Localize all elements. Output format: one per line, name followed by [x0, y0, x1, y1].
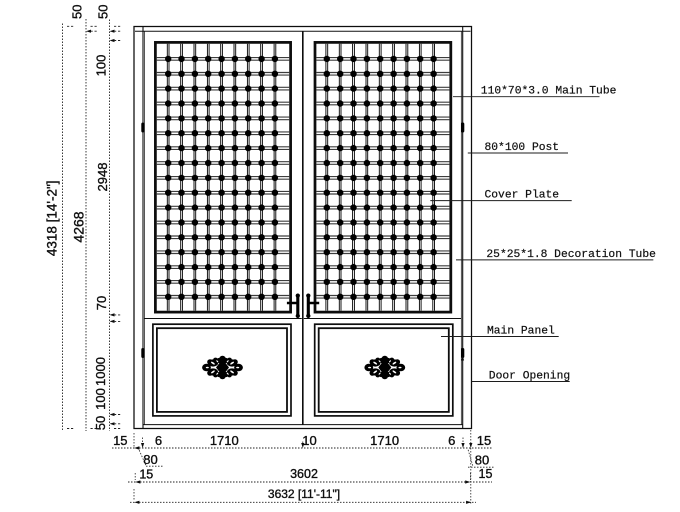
svg-text:15: 15: [139, 468, 153, 482]
svg-text:110*70*3.0 Main Tube: 110*70*3.0 Main Tube: [481, 86, 617, 98]
svg-text:1710: 1710: [210, 433, 239, 448]
svg-text:6: 6: [448, 433, 455, 448]
svg-text:25*25*1.8 Decoration Tube: 25*25*1.8 Decoration Tube: [486, 249, 656, 261]
svg-text:50: 50: [93, 416, 108, 430]
svg-text:4318 [14'-2"]: 4318 [14'-2"]: [45, 180, 60, 256]
svg-text:3632 [11'-11"]: 3632 [11'-11"]: [268, 487, 340, 501]
svg-text:80: 80: [475, 452, 489, 467]
svg-text:1710: 1710: [370, 433, 399, 448]
svg-text:2948: 2948: [95, 163, 110, 192]
svg-text:80*100 Post: 80*100 Post: [485, 142, 560, 154]
svg-text:Cover Plate: Cover Plate: [485, 190, 560, 202]
svg-text:Door Opening: Door Opening: [489, 371, 570, 383]
svg-text:100: 100: [93, 388, 108, 410]
svg-text:4268: 4268: [71, 211, 87, 242]
svg-text:15: 15: [479, 467, 493, 481]
svg-text:15: 15: [113, 433, 127, 448]
svg-text:3602: 3602: [290, 467, 318, 481]
svg-text:50: 50: [70, 5, 85, 19]
svg-text:70: 70: [94, 296, 109, 310]
svg-text:10: 10: [302, 433, 316, 448]
svg-text:Main Panel: Main Panel: [487, 326, 555, 338]
svg-text:80: 80: [143, 452, 157, 467]
svg-text:6: 6: [155, 433, 162, 448]
svg-text:15: 15: [477, 433, 491, 448]
svg-text:100: 100: [93, 55, 108, 77]
svg-text:1000: 1000: [93, 357, 108, 386]
svg-text:50: 50: [96, 5, 111, 19]
